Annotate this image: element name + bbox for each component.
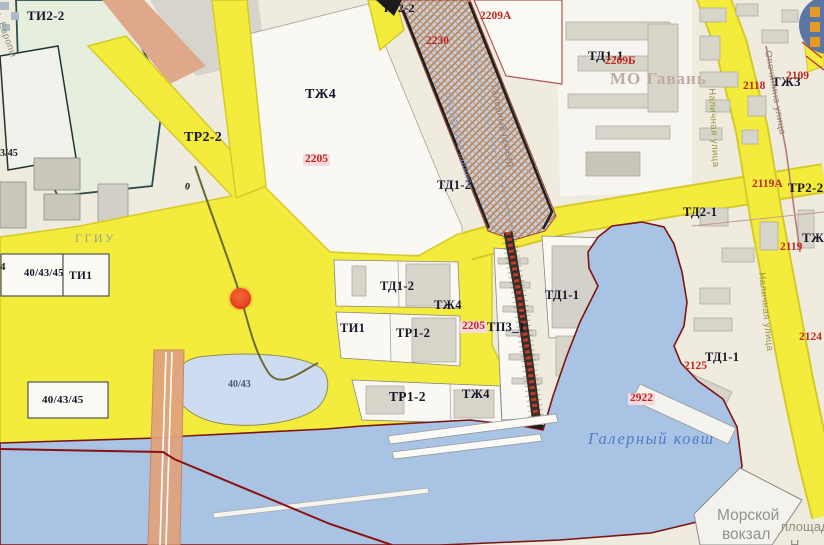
location-marker[interactable]	[230, 288, 251, 309]
pond	[174, 354, 328, 425]
map-graphics	[0, 0, 824, 545]
map-canvas[interactable]: ТИ2-2ТР2-2ТЖ4ТР2-2ТД1-2ТД1-1ТД2-1ТД1-2ТЖ…	[0, 0, 824, 545]
bridge-road	[148, 350, 184, 545]
